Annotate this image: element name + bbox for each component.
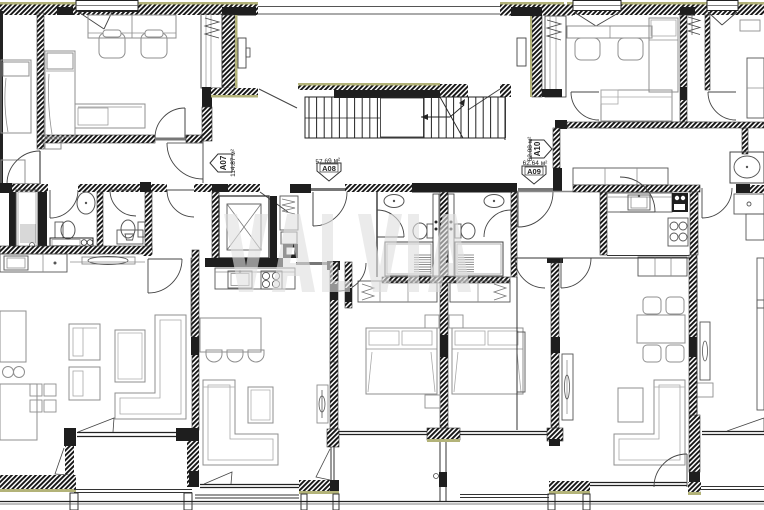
svg-text:A08: A08 — [322, 164, 336, 173]
svg-text:62.08 м²: 62.08 м² — [527, 136, 534, 162]
svg-text:A09: A09 — [527, 167, 541, 176]
svg-text:A07: A07 — [219, 155, 228, 170]
svg-text:114.87 м²: 114.87 м² — [230, 148, 237, 177]
svg-text:A10: A10 — [533, 141, 542, 156]
